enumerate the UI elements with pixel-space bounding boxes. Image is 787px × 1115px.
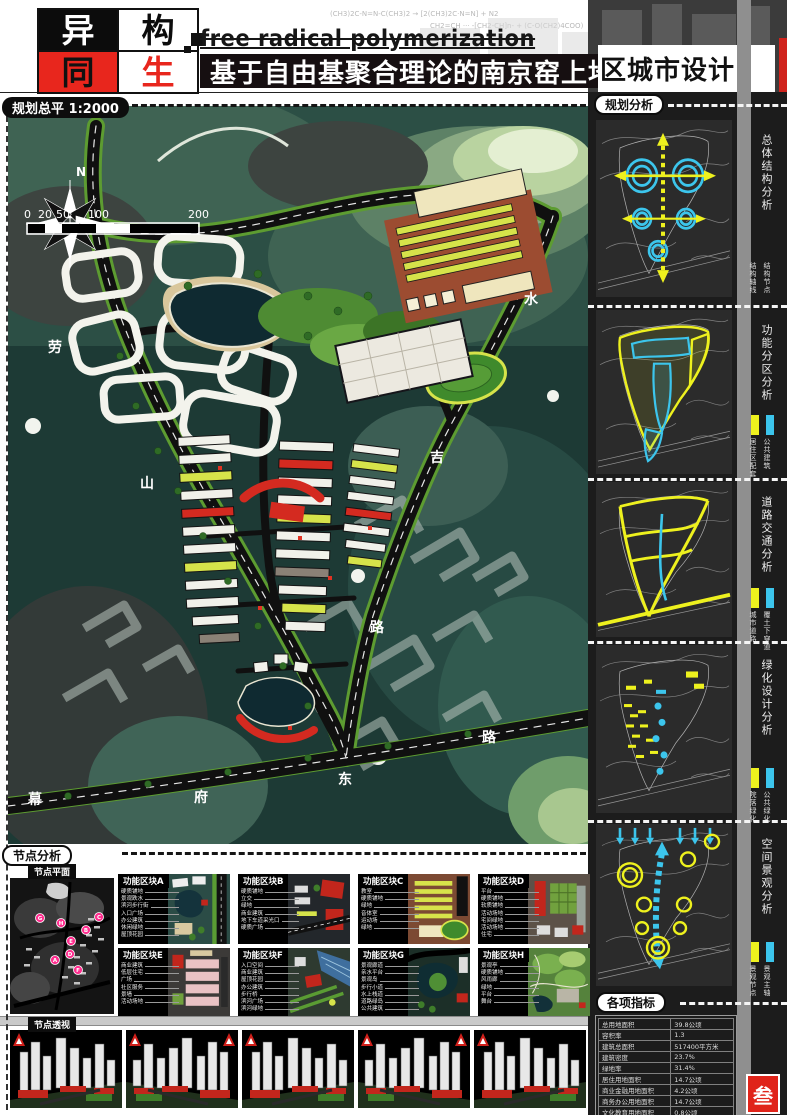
dashed-rule [122, 852, 586, 855]
logo-char-1: 异 [38, 9, 118, 51]
svg-text:C: C [97, 915, 101, 921]
function-block-H: 功能区块H 景观亭 硬质铺地 风雨廊 绿地 平台 舞台 [478, 948, 590, 1016]
panel-legend-greening: 院落绿化 公共绿化 [748, 768, 786, 823]
dashed-rule [680, 1002, 787, 1005]
dashed-rule [132, 104, 586, 107]
function-block-items: 入口空间 商业建筑 屋顶花园 办公建筑 步行桥 滨河广场 滨河绿地 [241, 963, 299, 1013]
function-block-items: 硬质铺地 立交 绿地 商业建筑 地下车道采光口 硬质广场 [241, 889, 299, 932]
dashed-rule-vertical [6, 106, 8, 1110]
legend-item: 结构轴线 [748, 262, 757, 294]
dashed-rule [588, 305, 787, 308]
legend-swatch-yellow [751, 415, 759, 435]
panel-label-function: 功能分区分析 [752, 324, 774, 402]
chem-formula-text: (CH3)2C-N=N-C(CH3)2 → [2(CH3)2C·N=N] + N… [330, 10, 498, 18]
function-block-C: 功能区块C 教室 硬质铺地 绿地 音体室 运动场 绿地 [358, 874, 470, 944]
dashed-rule [588, 641, 787, 644]
legend-swatch-yellow [751, 588, 759, 608]
legend-item: 结构节点 [762, 262, 771, 294]
function-block-label: 功能区块C [358, 874, 408, 888]
function-block-E: 功能区块E 商业建筑 低层住宅 广场 社区服务 景墙 活动场地 [118, 948, 230, 1016]
legend-swatch-cyan [766, 588, 774, 608]
function-block-label: 功能区块H [478, 948, 529, 962]
svg-text:吉: 吉 [430, 449, 444, 466]
function-block-items: 景观亭 硬质铺地 风雨廊 绿地 平台 舞台 [481, 963, 539, 1006]
panel-legend-structure: 结构轴线 结构节点 [748, 262, 786, 294]
svg-text:山: 山 [140, 476, 154, 492]
dashed-rule [588, 478, 787, 481]
svg-text:路: 路 [370, 619, 385, 636]
analysis-header: 规划分析 [594, 94, 664, 115]
svg-text:G: G [38, 916, 43, 922]
function-block-label: 功能区块A [118, 874, 169, 888]
node-plan-thumbnail: A B C D E F G H [10, 878, 114, 1014]
pixel-square [184, 46, 191, 53]
analysis-panel-landscape [596, 824, 732, 986]
legend-item: 覆土下穿道 [762, 611, 771, 651]
svg-text:E: E [69, 939, 73, 945]
legend-swatch-cyan [766, 415, 774, 435]
function-block-A: 功能区块A 硬质铺地 景观跌水 滨河步行街 入口广场 办公建筑 休闲绿地 屋顶花… [118, 874, 230, 944]
logo-char-2: 构 [118, 9, 198, 51]
legend-item: 公共绿化 [762, 791, 771, 823]
svg-text:H: H [59, 921, 64, 927]
logo-char-3: 同 [38, 51, 118, 93]
analysis-panel-traffic [596, 482, 732, 637]
node-perspective-label: 节点透视 [28, 1017, 76, 1032]
legend-swatch-cyan [766, 942, 774, 962]
panel-legend-landscape: 景观节点 景观主轴 [748, 942, 786, 997]
indicators-table: 总用地面积39.8公顷 容积率1.3 建筑总面积517400平方米 建筑密度23… [598, 1018, 734, 1115]
logo-char-4: 生 [118, 51, 198, 93]
svg-text:0: 0 [24, 208, 31, 221]
page-number: 叁 [746, 1074, 780, 1114]
analysis-panel-structure [596, 120, 732, 297]
nodes-header: 节点分析 [2, 845, 72, 866]
panel-label-landscape: 空间景观分析 [752, 838, 774, 916]
legend-item: 景观节点 [748, 965, 757, 997]
legend-item: 城市道路 [748, 611, 757, 651]
header: (CH3)2C-N=N-C(CH3)2 → [2(CH3)2C·N=N] + N… [0, 0, 787, 93]
function-block-label: 功能区块F [238, 948, 288, 962]
function-block-D: 功能区块D 平台 硬质铺地 软质铺地 活动场地 宅间绿地 活动场地 住宅 [478, 874, 590, 944]
analysis-panel-function [596, 310, 732, 474]
svg-text:路: 路 [482, 729, 497, 746]
master-plan-svg: N 0 20 50 100 200 劳 山 水 吉 路 幕 府 东 路 [8, 106, 588, 844]
legend-swatch-yellow [751, 942, 759, 962]
svg-text:D: D [68, 952, 73, 958]
section-divider [0, 1016, 588, 1026]
poster: (CH3)2C-N=N-C(CH3)2 → [2(CH3)2C·N=N] + N… [0, 0, 787, 1115]
analysis-panel-greening [596, 645, 732, 813]
svg-text:F: F [76, 968, 80, 974]
title-english: free radical polymerization [200, 26, 535, 52]
master-plan-map: N 0 20 50 100 200 劳 山 水 吉 路 幕 府 东 路 [8, 106, 588, 844]
panel-legend-function: 居住区配套 公共建筑 [748, 415, 786, 478]
dashed-rule [668, 104, 787, 107]
analysis-sidebar: 规划分析 [588, 92, 787, 1115]
function-block-label: 功能区块E [118, 948, 168, 962]
function-block-F: 功能区块F 入口空间 商业建筑 屋顶花园 办公建筑 步行桥 滨河广场 滨河绿地 [238, 948, 350, 1016]
legend-swatch-yellow [751, 768, 759, 788]
title-chinese-bar: 基于自由基聚合理论的南京窑上地 [200, 54, 608, 88]
panel-label-greening: 绿化设计分析 [752, 659, 774, 737]
svg-text:A: A [53, 958, 58, 964]
svg-text:B: B [84, 928, 88, 934]
north-label: N [76, 165, 86, 179]
svg-text:水: 水 [524, 291, 539, 308]
function-block-B: 功能区块B 硬质铺地 立交 绿地 商业建筑 地下车道采光口 硬质广场 [238, 874, 350, 944]
perspective-thumbnail-5 [474, 1030, 586, 1108]
red-edge-strip [779, 38, 787, 92]
perspective-thumbnail-2 [126, 1030, 238, 1108]
legend-item: 居住区配套 [748, 438, 757, 478]
function-block-items: 商业建筑 低层住宅 广场 社区服务 景墙 活动场地 [121, 963, 179, 1006]
legend-item: 景观主轴 [762, 965, 771, 997]
function-block-label: 功能区块G [358, 948, 409, 962]
function-block-label: 功能区块D [478, 874, 529, 888]
panel-label-traffic: 道路交通分析 [752, 496, 774, 574]
dashed-rule [588, 820, 787, 823]
function-block-G: 功能区块G 景观廊道 亲水平台 景观岛 步行小道 水上栈道 道路绿岛 公共建筑 [358, 948, 470, 1016]
legend-item: 公共建筑 [762, 438, 771, 478]
svg-text:100: 100 [88, 208, 109, 221]
perspective-thumbnail-4 [358, 1030, 470, 1108]
legend-swatch-cyan [766, 768, 774, 788]
svg-text:20: 20 [38, 208, 52, 221]
master-plan-label: 规划总平 1:2000 [2, 97, 129, 118]
svg-text:府: 府 [194, 789, 208, 806]
function-block-items: 硬质铺地 景观跌水 滨河步行街 入口广场 办公建筑 休闲绿地 屋顶花园 [121, 889, 179, 939]
svg-text:200: 200 [188, 208, 209, 221]
perspective-thumbnail-3 [242, 1030, 354, 1108]
function-block-items: 教室 硬质铺地 绿地 音体室 运动场 绿地 [361, 889, 419, 932]
svg-text:劳: 劳 [48, 339, 62, 356]
perspective-thumbnail-1 [10, 1030, 122, 1108]
svg-text:幕: 幕 [27, 791, 43, 808]
svg-text:东: 东 [338, 771, 352, 788]
node-plan-label: 节点平面 [28, 864, 76, 879]
panel-label-structure: 总体结构分析 [752, 134, 774, 212]
legend-item: 院落绿化 [748, 791, 757, 823]
svg-text:50: 50 [56, 208, 70, 221]
function-block-items: 景观廊道 亲水平台 景观岛 步行小道 水上栈道 道路绿岛 公共建筑 [361, 963, 419, 1013]
function-block-label: 功能区块B [238, 874, 288, 888]
function-block-items: 平台 硬质铺地 软质铺地 活动场地 宅间绿地 活动场地 住宅 [481, 889, 539, 939]
logo: 异 构 同 生 [37, 8, 199, 94]
indicators-header: 各项指标 [596, 992, 666, 1013]
